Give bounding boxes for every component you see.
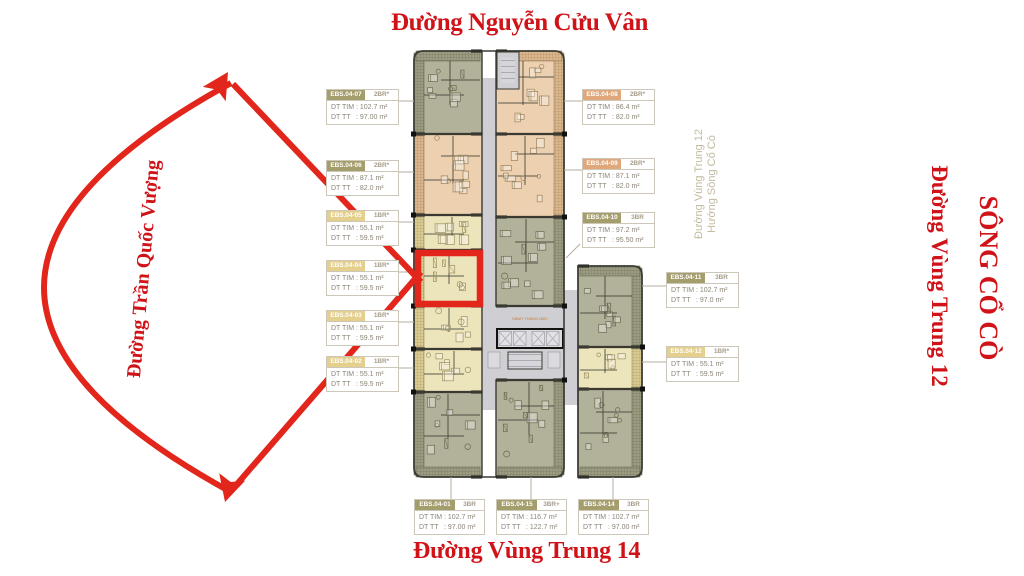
svg-text:SẢNH THANG MÁY: SẢNH THANG MÁY bbox=[512, 316, 548, 321]
